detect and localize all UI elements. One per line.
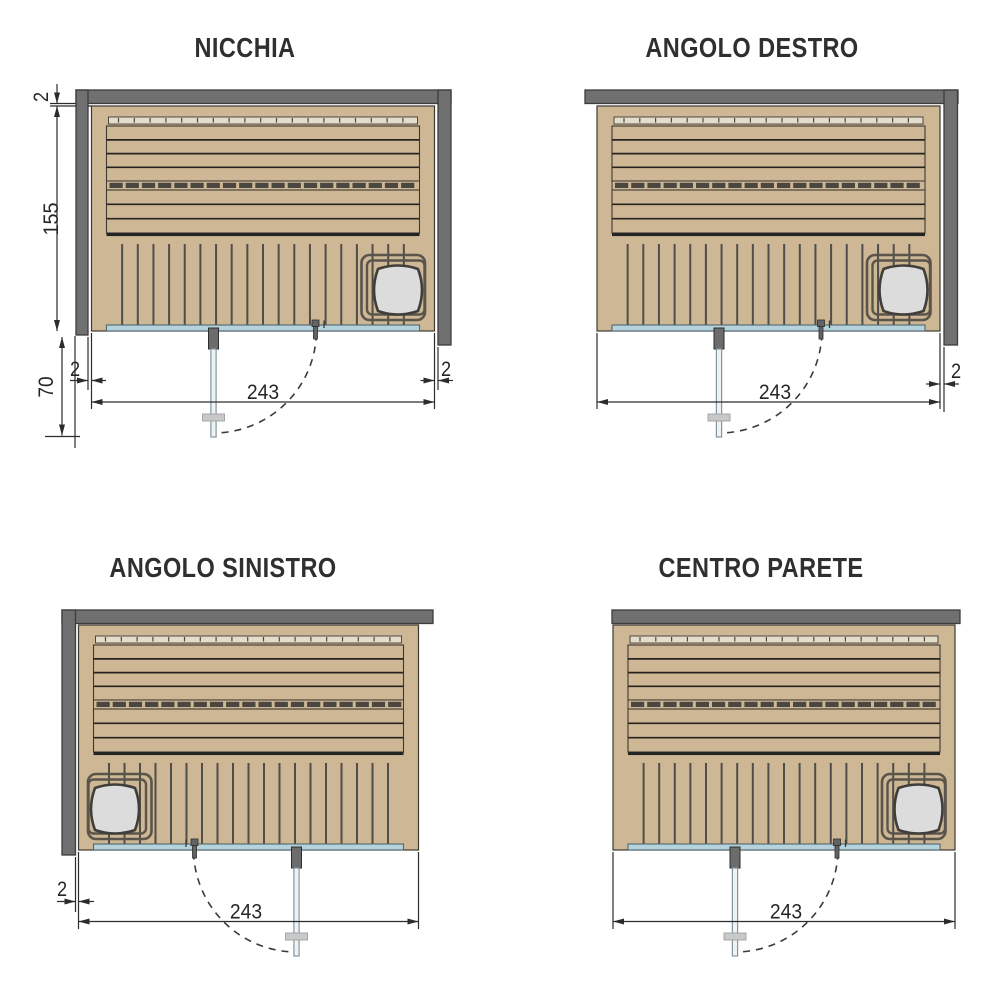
- diagram-angolo-sinistro: 2243: [57, 610, 433, 956]
- door-assembly: [186, 839, 308, 956]
- dimension-arrow: [408, 919, 419, 925]
- dimension-arrow: [54, 93, 60, 104]
- dimension-arrow: [79, 919, 90, 925]
- dimension-arrow: [597, 399, 608, 405]
- sauna-installation-sheet: 2155702224322432243243 NICCHIA ANGOLO DE…: [0, 0, 1000, 1000]
- dimension-arrow: [613, 919, 624, 925]
- door-latch-stem: [193, 846, 197, 859]
- diagram-title-nicchia: NICCHIA: [195, 33, 296, 63]
- door-open-glass: [716, 349, 721, 437]
- backrest: [630, 636, 938, 643]
- dimensions: 2243: [57, 852, 419, 929]
- glass-front: [94, 844, 404, 850]
- dimension-arrow: [929, 381, 940, 387]
- sauna-cabin: [597, 106, 940, 331]
- diagram-title-angolo-sinistro: ANGOLO SINISTRO: [109, 553, 336, 583]
- dim-clearance: 70: [35, 336, 80, 448]
- wall-right: [438, 90, 451, 345]
- bench-front-edge: [628, 752, 940, 755]
- glass-front: [628, 844, 940, 850]
- dimension-arrow: [59, 337, 65, 348]
- diagram-nicchia: 21557022243: [30, 84, 453, 448]
- door-open-glass: [294, 868, 299, 956]
- stove: [895, 785, 943, 834]
- bench-lower: [94, 709, 404, 752]
- glass-front: [107, 325, 420, 331]
- backrest: [96, 636, 402, 643]
- dim-width: 243: [613, 852, 955, 929]
- door-handle: [286, 933, 308, 940]
- bench-front-strip: [107, 236, 420, 244]
- bench-front-edge: [612, 233, 925, 236]
- dimension-arrow: [944, 919, 955, 925]
- dimension-arrow: [79, 899, 90, 905]
- sauna-cabin: [613, 625, 955, 850]
- stove: [91, 785, 139, 834]
- dimensions: 243: [613, 852, 955, 929]
- dimension-label: 243: [247, 381, 279, 404]
- door-handle: [203, 414, 225, 421]
- bench-front-edge: [94, 752, 404, 755]
- diagram-title-angolo-destro: ANGOLO DESTRO: [645, 33, 858, 63]
- dim-gap-right: 2: [421, 347, 454, 390]
- dimension-label: 2: [441, 358, 451, 381]
- dimension-label: 243: [770, 901, 802, 924]
- dim-width: 243: [597, 333, 940, 409]
- diagram-title-centro-parete: CENTRO PARETE: [659, 553, 864, 583]
- wall-left: [76, 90, 88, 335]
- wall-top: [76, 90, 451, 104]
- door-hinge: [292, 847, 302, 868]
- stove: [880, 266, 928, 315]
- door-handle: [724, 933, 746, 940]
- door-open-glass: [211, 349, 216, 437]
- dim-width: 243: [92, 333, 435, 409]
- dim-width: 243: [79, 852, 419, 929]
- installation-diagrams-canvas: 2155702224322432243243: [0, 0, 1000, 1000]
- diagram-angolo-destro: 2243: [585, 90, 961, 437]
- dimensions: 2243: [597, 333, 961, 412]
- wall-left: [62, 610, 76, 855]
- door-latch-knob: [191, 839, 198, 846]
- dim-gap-left: 2: [57, 857, 94, 912]
- dimension-arrow: [92, 378, 103, 384]
- dimension-label: 70: [35, 376, 58, 397]
- wall-top: [585, 90, 958, 104]
- dimension-arrow: [54, 106, 60, 117]
- bench-front-strip: [628, 755, 940, 763]
- dimension-arrow: [424, 378, 435, 384]
- glass-front: [612, 325, 925, 331]
- door-assembly: [724, 839, 846, 956]
- bench-lower: [628, 709, 940, 752]
- dimension-arrow: [424, 399, 435, 405]
- door-latch-stem: [819, 327, 823, 340]
- dimension-label: 243: [759, 381, 791, 404]
- door-assembly: [708, 320, 830, 437]
- door-latch-knob: [834, 839, 841, 846]
- stove: [374, 266, 422, 315]
- bench-front-edge: [107, 233, 420, 236]
- door-hinge: [730, 847, 740, 868]
- bench-lower: [612, 190, 925, 233]
- dim-depth: 155: [40, 106, 63, 331]
- dimension-label: 2: [57, 878, 67, 901]
- door-latch-knob: [312, 320, 319, 327]
- door-hinge: [209, 328, 219, 349]
- dimension-arrow: [59, 425, 65, 436]
- dimension-label: 2: [30, 92, 53, 102]
- dimension-arrow: [54, 320, 60, 331]
- bench-front-strip: [94, 755, 404, 763]
- bench-front-strip: [612, 236, 925, 244]
- door-latch-stem: [835, 846, 839, 859]
- sauna-cabin: [92, 106, 435, 331]
- door-open-glass: [732, 868, 737, 956]
- bench-lower: [107, 190, 420, 233]
- wall-top: [612, 610, 960, 624]
- dimension-arrow: [929, 399, 940, 405]
- wall-right: [944, 90, 958, 345]
- dimension-arrow: [92, 399, 103, 405]
- door-hinge: [714, 328, 724, 349]
- door-latch-knob: [818, 320, 825, 327]
- diagram-centro-parete: 243: [612, 610, 960, 956]
- dimension-label: 2: [70, 358, 80, 381]
- dimension-label: 243: [230, 901, 262, 924]
- door-handle: [708, 414, 730, 421]
- dimension-label: 2: [951, 360, 961, 383]
- door-assembly: [203, 320, 325, 437]
- wall-top: [62, 610, 433, 624]
- dimension-label: 155: [40, 202, 63, 235]
- sauna-cabin: [79, 625, 419, 850]
- door-latch-stem: [314, 327, 318, 340]
